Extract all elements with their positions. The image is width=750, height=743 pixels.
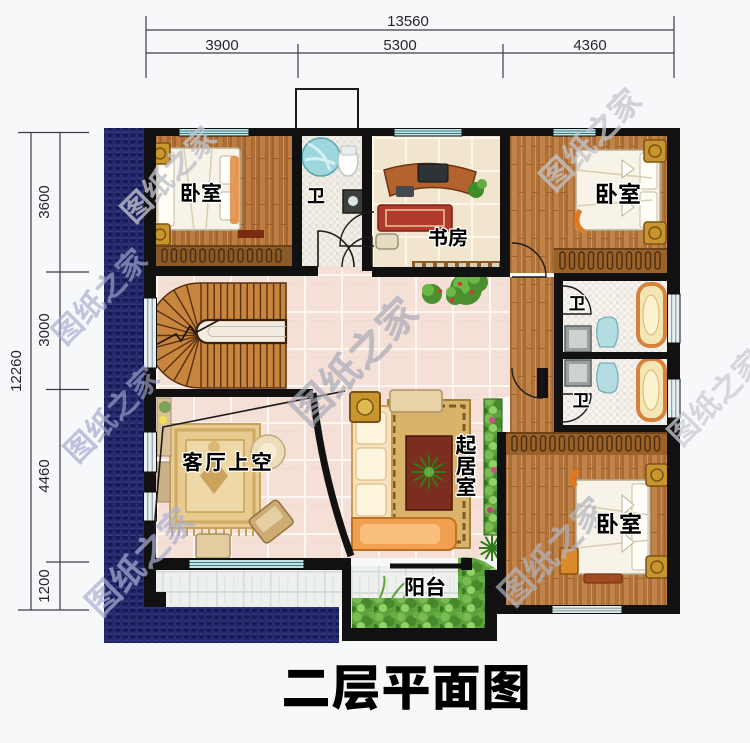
svg-text:1200: 1200 [36,569,53,602]
svg-text:12260: 12260 [8,350,25,392]
svg-text:5300: 5300 [383,37,416,54]
svg-text:4360: 4360 [573,37,606,54]
svg-text:4460: 4460 [36,459,53,492]
svg-text:3000: 3000 [36,313,53,346]
svg-text:3900: 3900 [205,37,238,54]
svg-text:13560: 13560 [387,13,429,30]
svg-text:3600: 3600 [36,185,53,218]
